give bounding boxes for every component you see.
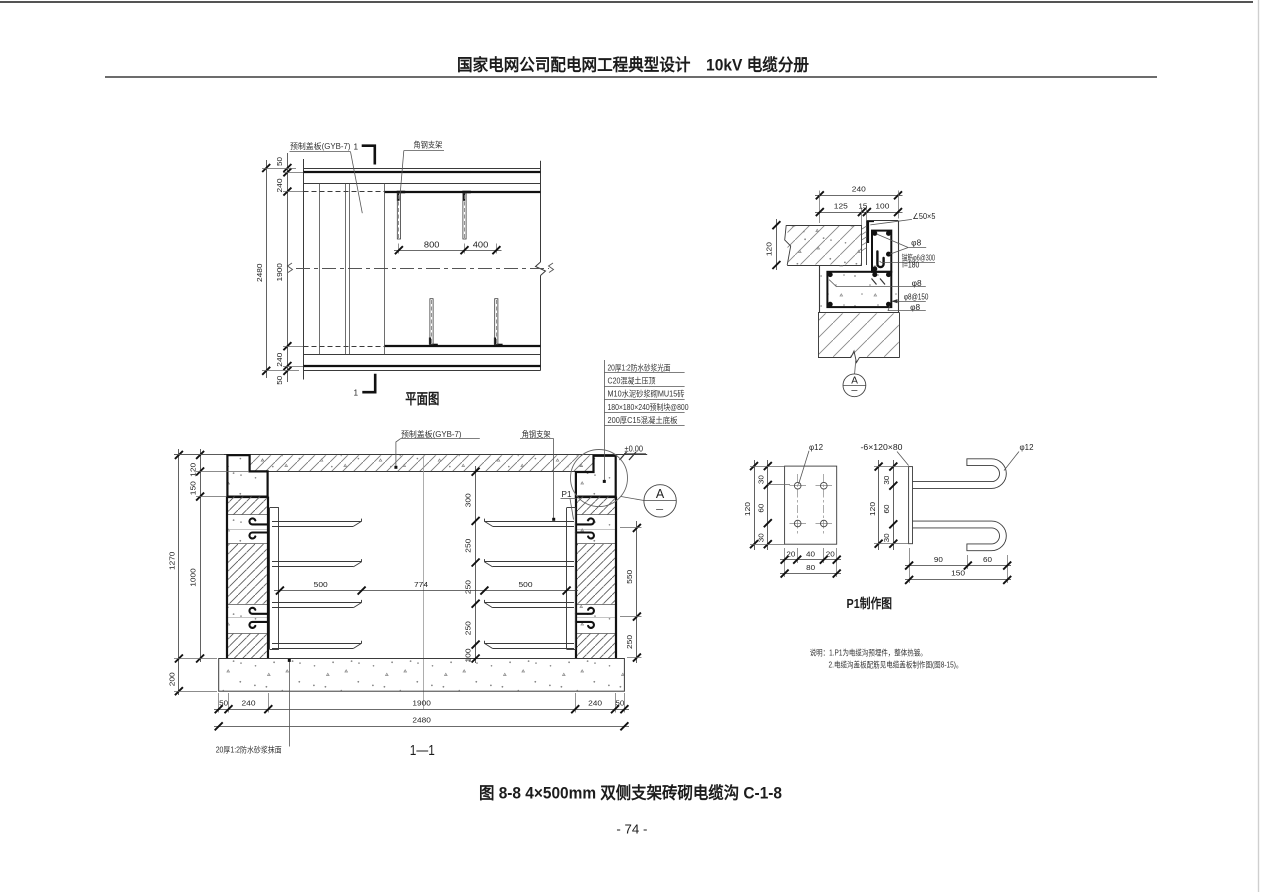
svg-text:φ12: φ12 bbox=[809, 443, 824, 452]
svg-text:100: 100 bbox=[464, 649, 473, 663]
svg-text:60: 60 bbox=[757, 504, 766, 513]
svg-text:240: 240 bbox=[242, 698, 256, 707]
svg-text:1: 1 bbox=[354, 389, 359, 398]
svg-text:50: 50 bbox=[275, 376, 284, 385]
svg-text:20: 20 bbox=[826, 549, 835, 558]
svg-text:P1制作图: P1制作图 bbox=[847, 596, 893, 611]
svg-text:20厚1:2防水砂浆抹面: 20厚1:2防水砂浆抹面 bbox=[216, 744, 282, 754]
svg-text:A: A bbox=[656, 487, 665, 501]
svg-text:φ8: φ8 bbox=[911, 239, 922, 248]
svg-text:125: 125 bbox=[834, 201, 848, 210]
svg-text:1900: 1900 bbox=[275, 263, 284, 282]
svg-text:50: 50 bbox=[275, 157, 284, 166]
svg-text:国家电网公司配电网工程典型设计 10kV 电缆分册: 国家电网公司配电网工程典型设计 10kV 电缆分册 bbox=[457, 55, 809, 75]
svg-text:240: 240 bbox=[588, 698, 602, 707]
svg-text:240: 240 bbox=[852, 185, 866, 194]
svg-text:120: 120 bbox=[743, 502, 752, 516]
svg-text:±0.00: ±0.00 bbox=[625, 445, 644, 454]
svg-text:角钢支架: 角钢支架 bbox=[413, 140, 442, 150]
svg-text:φ8@150: φ8@150 bbox=[904, 293, 929, 302]
svg-text:90: 90 bbox=[934, 555, 943, 564]
svg-text:预制盖板(GYB-7): 预制盖板(GYB-7) bbox=[290, 141, 351, 151]
svg-text:120: 120 bbox=[765, 242, 774, 256]
svg-text:250: 250 bbox=[464, 539, 473, 553]
svg-text:250: 250 bbox=[464, 580, 473, 594]
svg-text:150: 150 bbox=[951, 568, 965, 577]
svg-text:120: 120 bbox=[189, 463, 198, 477]
svg-text:-6×120×80: -6×120×80 bbox=[861, 443, 904, 452]
svg-text:A: A bbox=[851, 375, 858, 386]
svg-text:250: 250 bbox=[464, 621, 473, 635]
svg-text:100: 100 bbox=[875, 201, 889, 210]
svg-text:1900: 1900 bbox=[412, 698, 431, 707]
svg-text:200: 200 bbox=[167, 672, 176, 686]
svg-text:240: 240 bbox=[275, 353, 284, 367]
svg-text:1270: 1270 bbox=[167, 552, 176, 571]
svg-text:C20混凝土压顶: C20混凝土压顶 bbox=[608, 376, 656, 386]
svg-text:250: 250 bbox=[625, 635, 634, 649]
svg-text:- 74 -: - 74 - bbox=[616, 823, 647, 837]
svg-text:l=180: l=180 bbox=[902, 261, 920, 270]
svg-text:平面图: 平面图 bbox=[405, 391, 439, 408]
svg-text:120: 120 bbox=[868, 502, 877, 516]
svg-text:预制盖板(GYB-7): 预制盖板(GYB-7) bbox=[401, 429, 462, 439]
svg-text:180×180×240预制块@800: 180×180×240预制块@800 bbox=[608, 402, 690, 412]
svg-text:1—1: 1—1 bbox=[410, 742, 435, 759]
svg-text:550: 550 bbox=[625, 570, 634, 584]
svg-text:774: 774 bbox=[414, 580, 428, 589]
svg-text:500: 500 bbox=[519, 580, 533, 589]
svg-text:200厚C15混凝土底板: 200厚C15混凝土底板 bbox=[608, 415, 678, 425]
svg-text:图 8-8 4×500mm 双侧支架砖砌电缆沟 C-1-8: 图 8-8 4×500mm 双侧支架砖砌电缆沟 C-1-8 bbox=[479, 782, 782, 802]
svg-text:800: 800 bbox=[424, 241, 440, 250]
svg-text:∠50×5: ∠50×5 bbox=[912, 212, 935, 221]
svg-text:φ12: φ12 bbox=[1020, 443, 1035, 452]
svg-text:30: 30 bbox=[882, 533, 891, 542]
svg-text:说明：1.P1为电缆沟预埋件，整体热镀。: 说明：1.P1为电缆沟预埋件，整体热镀。 bbox=[810, 647, 927, 657]
svg-text:150: 150 bbox=[189, 481, 198, 495]
svg-text:1: 1 bbox=[354, 142, 359, 151]
svg-text:角钢支架: 角钢支架 bbox=[522, 429, 551, 439]
svg-text:15: 15 bbox=[858, 201, 867, 210]
svg-text:2.电缆沟盖板配筋见电缆盖板制作图(图8-15)。: 2.电缆沟盖板配筋见电缆盖板制作图(图8-15)。 bbox=[829, 659, 963, 669]
svg-text:240: 240 bbox=[275, 179, 284, 193]
svg-text:80: 80 bbox=[806, 563, 815, 572]
svg-text:50: 50 bbox=[219, 698, 228, 707]
svg-text:60: 60 bbox=[983, 555, 992, 564]
svg-text:30: 30 bbox=[882, 476, 891, 485]
svg-text:20厚1:2防水砂浆光面: 20厚1:2防水砂浆光面 bbox=[608, 362, 671, 372]
svg-text:2480: 2480 bbox=[255, 264, 264, 283]
svg-text:50: 50 bbox=[615, 698, 624, 707]
svg-text:M10水泥砂浆砌MU15砖: M10水泥砂浆砌MU15砖 bbox=[608, 389, 685, 399]
svg-text:60: 60 bbox=[882, 505, 891, 514]
svg-text:500: 500 bbox=[314, 580, 328, 589]
svg-text:300: 300 bbox=[464, 493, 473, 507]
svg-text:30: 30 bbox=[757, 475, 766, 484]
svg-text:1000: 1000 bbox=[189, 568, 198, 587]
svg-text:40: 40 bbox=[806, 549, 815, 558]
svg-text:2480: 2480 bbox=[412, 715, 431, 724]
svg-text:P1: P1 bbox=[562, 490, 573, 499]
svg-text:400: 400 bbox=[473, 241, 489, 250]
svg-text:20: 20 bbox=[786, 549, 795, 558]
